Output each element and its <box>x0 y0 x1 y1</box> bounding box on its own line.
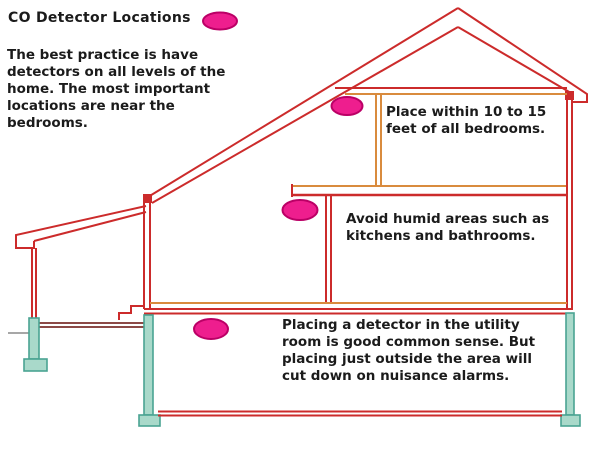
humid-areas-note-line: kitchens and bathrooms. <box>346 228 549 245</box>
bedroom-wall <box>376 95 381 186</box>
intro-line: detectors on all levels of the <box>7 64 225 81</box>
kitchen-wall <box>326 196 331 303</box>
main-level-detector-icon <box>283 200 318 220</box>
main-floor <box>144 303 571 314</box>
attic-note: Place within 10 to 15 feet of all bedroo… <box>386 104 546 138</box>
intro-line: The best practice is have <box>7 47 225 64</box>
left-wall-roof-junction <box>143 194 152 203</box>
intro-line: bedrooms. <box>7 115 225 132</box>
humid-areas-note: Avoid humid areas such as kitchens and b… <box>346 211 549 245</box>
attic-detector-icon <box>332 97 363 115</box>
second-floor <box>292 184 567 197</box>
utility-room-note: Placing a detector in the utility room i… <box>282 317 535 385</box>
intro-line: locations are near the <box>7 98 225 115</box>
entry-step <box>119 306 144 320</box>
right-wall <box>567 98 572 310</box>
utility-room-note-line: placing just outside the area will <box>282 351 535 368</box>
foundation-basement-left <box>139 315 160 426</box>
foundation-basement-right <box>561 313 580 426</box>
intro-line: home. The most important <box>7 81 225 98</box>
attic-ceiling <box>335 88 567 94</box>
garage-roof <box>16 206 146 248</box>
co-detector-diagram: CO Detector Locations The best practice … <box>0 0 600 469</box>
basement-detector-icon <box>194 319 228 339</box>
intro-paragraph: The best practice is have detectors on a… <box>7 47 225 132</box>
utility-room-note-line: cut down on nuisance alarms. <box>282 368 535 385</box>
garage-wall <box>32 248 36 318</box>
basement-floor <box>158 412 562 416</box>
attic-note-line: feet of all bedrooms. <box>386 121 546 138</box>
utility-room-note-line: room is good common sense. But <box>282 334 535 351</box>
garage-floor-slab <box>38 323 146 327</box>
page-title: CO Detector Locations <box>8 10 191 27</box>
attic-note-line: Place within 10 to 15 <box>386 104 546 121</box>
left-wall <box>144 202 150 309</box>
foundation-garage-pier <box>24 318 47 371</box>
legend-detector-icon <box>203 13 237 30</box>
utility-room-note-line: Placing a detector in the utility <box>282 317 535 334</box>
humid-areas-note-line: Avoid humid areas such as <box>346 211 549 228</box>
